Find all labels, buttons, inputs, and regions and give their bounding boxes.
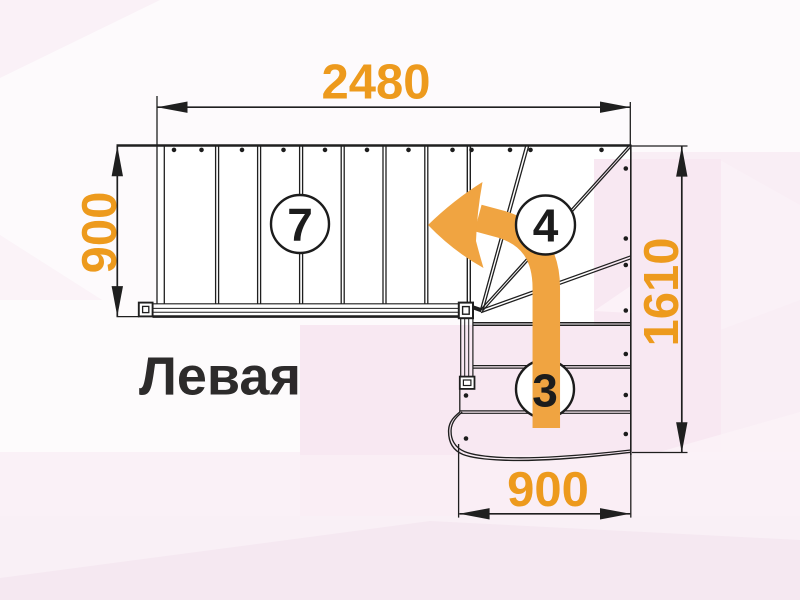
svg-text:1610: 1610 <box>635 237 689 346</box>
svg-text:900: 900 <box>507 463 589 517</box>
svg-text:2480: 2480 <box>321 56 430 110</box>
svg-text:3: 3 <box>532 365 558 417</box>
svg-text:4: 4 <box>533 200 559 252</box>
svg-text:7: 7 <box>287 199 313 251</box>
svg-text:Левая: Левая <box>139 347 301 407</box>
svg-text:900: 900 <box>73 192 127 274</box>
